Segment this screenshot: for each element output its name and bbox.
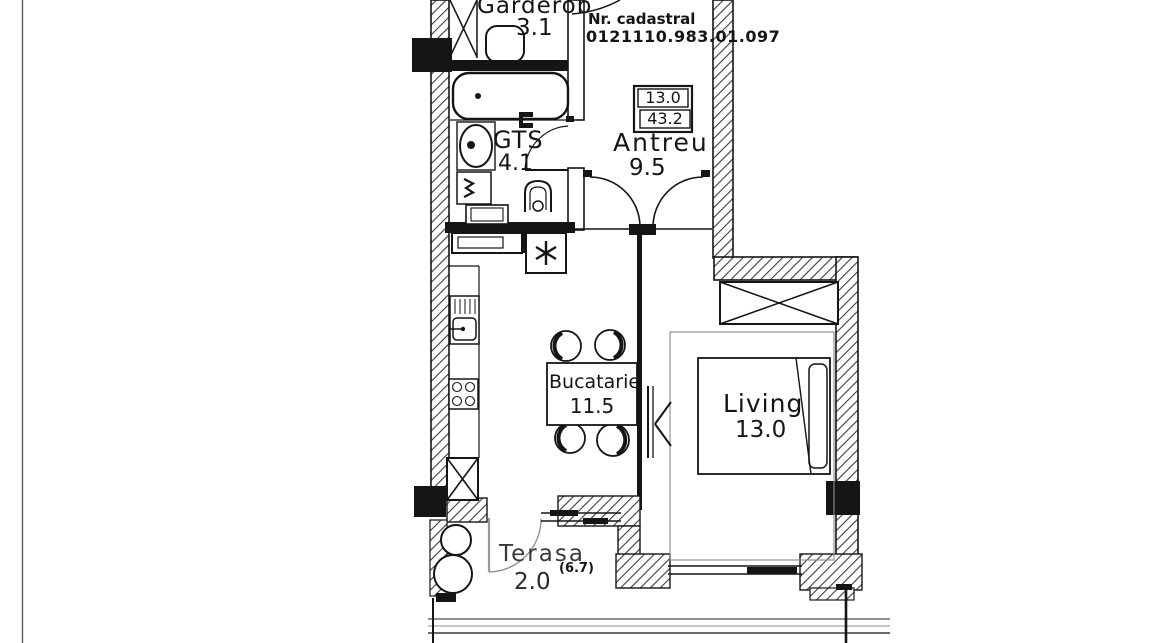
door-jamb — [566, 116, 574, 122]
column-round-icon — [434, 555, 472, 593]
kitchen-fixtures — [447, 233, 637, 500]
gts-kitchen-wall — [445, 222, 575, 233]
terrace-foot — [436, 593, 456, 602]
cadastral-label: Nr. cadastral — [588, 10, 695, 28]
kitchen-sink-icon — [450, 296, 479, 344]
boiler-asterisk-icon — [526, 233, 566, 273]
cadastral-number: 0121110.983.01.097 — [586, 27, 780, 46]
room-area-living: 13.0 — [735, 417, 786, 443]
column-icon — [412, 38, 452, 72]
floorplan-page: Garderob 3.1 Nr. cadastral 0121110.983.0… — [0, 0, 1150, 643]
chair-icon — [551, 331, 581, 361]
chair-icon — [595, 330, 625, 360]
counter-cabinet-icon — [449, 233, 522, 458]
living-window-pier-right — [800, 554, 862, 590]
vanity-cabinet-icon — [466, 205, 508, 224]
tv-bracket-icon — [648, 386, 671, 458]
stove-icon — [449, 379, 478, 409]
right-wall — [836, 257, 858, 565]
room-area-total-terasa: (6.7) — [559, 561, 594, 576]
area-table-lower: 43.2 — [640, 110, 690, 128]
wall-stub — [629, 224, 656, 235]
bathtub-icon — [450, 73, 568, 120]
wardrobe-x-icon — [450, 0, 477, 58]
room-label-antreu: Antreu — [613, 128, 709, 157]
room-area-gts: 4.1 — [498, 151, 533, 176]
cabinet-x-icon — [447, 458, 478, 500]
room-area-bucatarie: 11.5 — [549, 394, 635, 418]
chair-icon — [555, 423, 585, 453]
gts-antreu-wall-lower — [568, 168, 584, 230]
room-area-antreu: 9.5 — [629, 155, 666, 181]
living-window-pier-left — [616, 554, 670, 588]
room-label-gts: GTS — [493, 126, 544, 154]
room-area-terasa: 2.0 — [514, 569, 551, 595]
column-icon — [414, 486, 446, 517]
terrace-wall-step — [618, 526, 640, 558]
window-icon — [668, 566, 802, 574]
area-table-upper: 13.0 — [638, 89, 688, 107]
wall-stub — [836, 584, 852, 590]
column-icon — [826, 481, 860, 515]
washbasin-icon — [457, 122, 495, 170]
washing-machine-icon — [457, 172, 491, 204]
chair-icon — [597, 424, 629, 456]
room-label-bucatarie: Bucatarie — [549, 371, 635, 393]
toilet-icon — [525, 181, 551, 212]
wardrobe-x-icon — [720, 282, 838, 324]
room-area-garderob: 3.1 — [516, 15, 553, 41]
room-label-living: Living — [723, 389, 803, 418]
column-round-icon — [441, 525, 471, 555]
terrace-pier-left — [447, 498, 487, 522]
left-wall — [431, 0, 449, 505]
